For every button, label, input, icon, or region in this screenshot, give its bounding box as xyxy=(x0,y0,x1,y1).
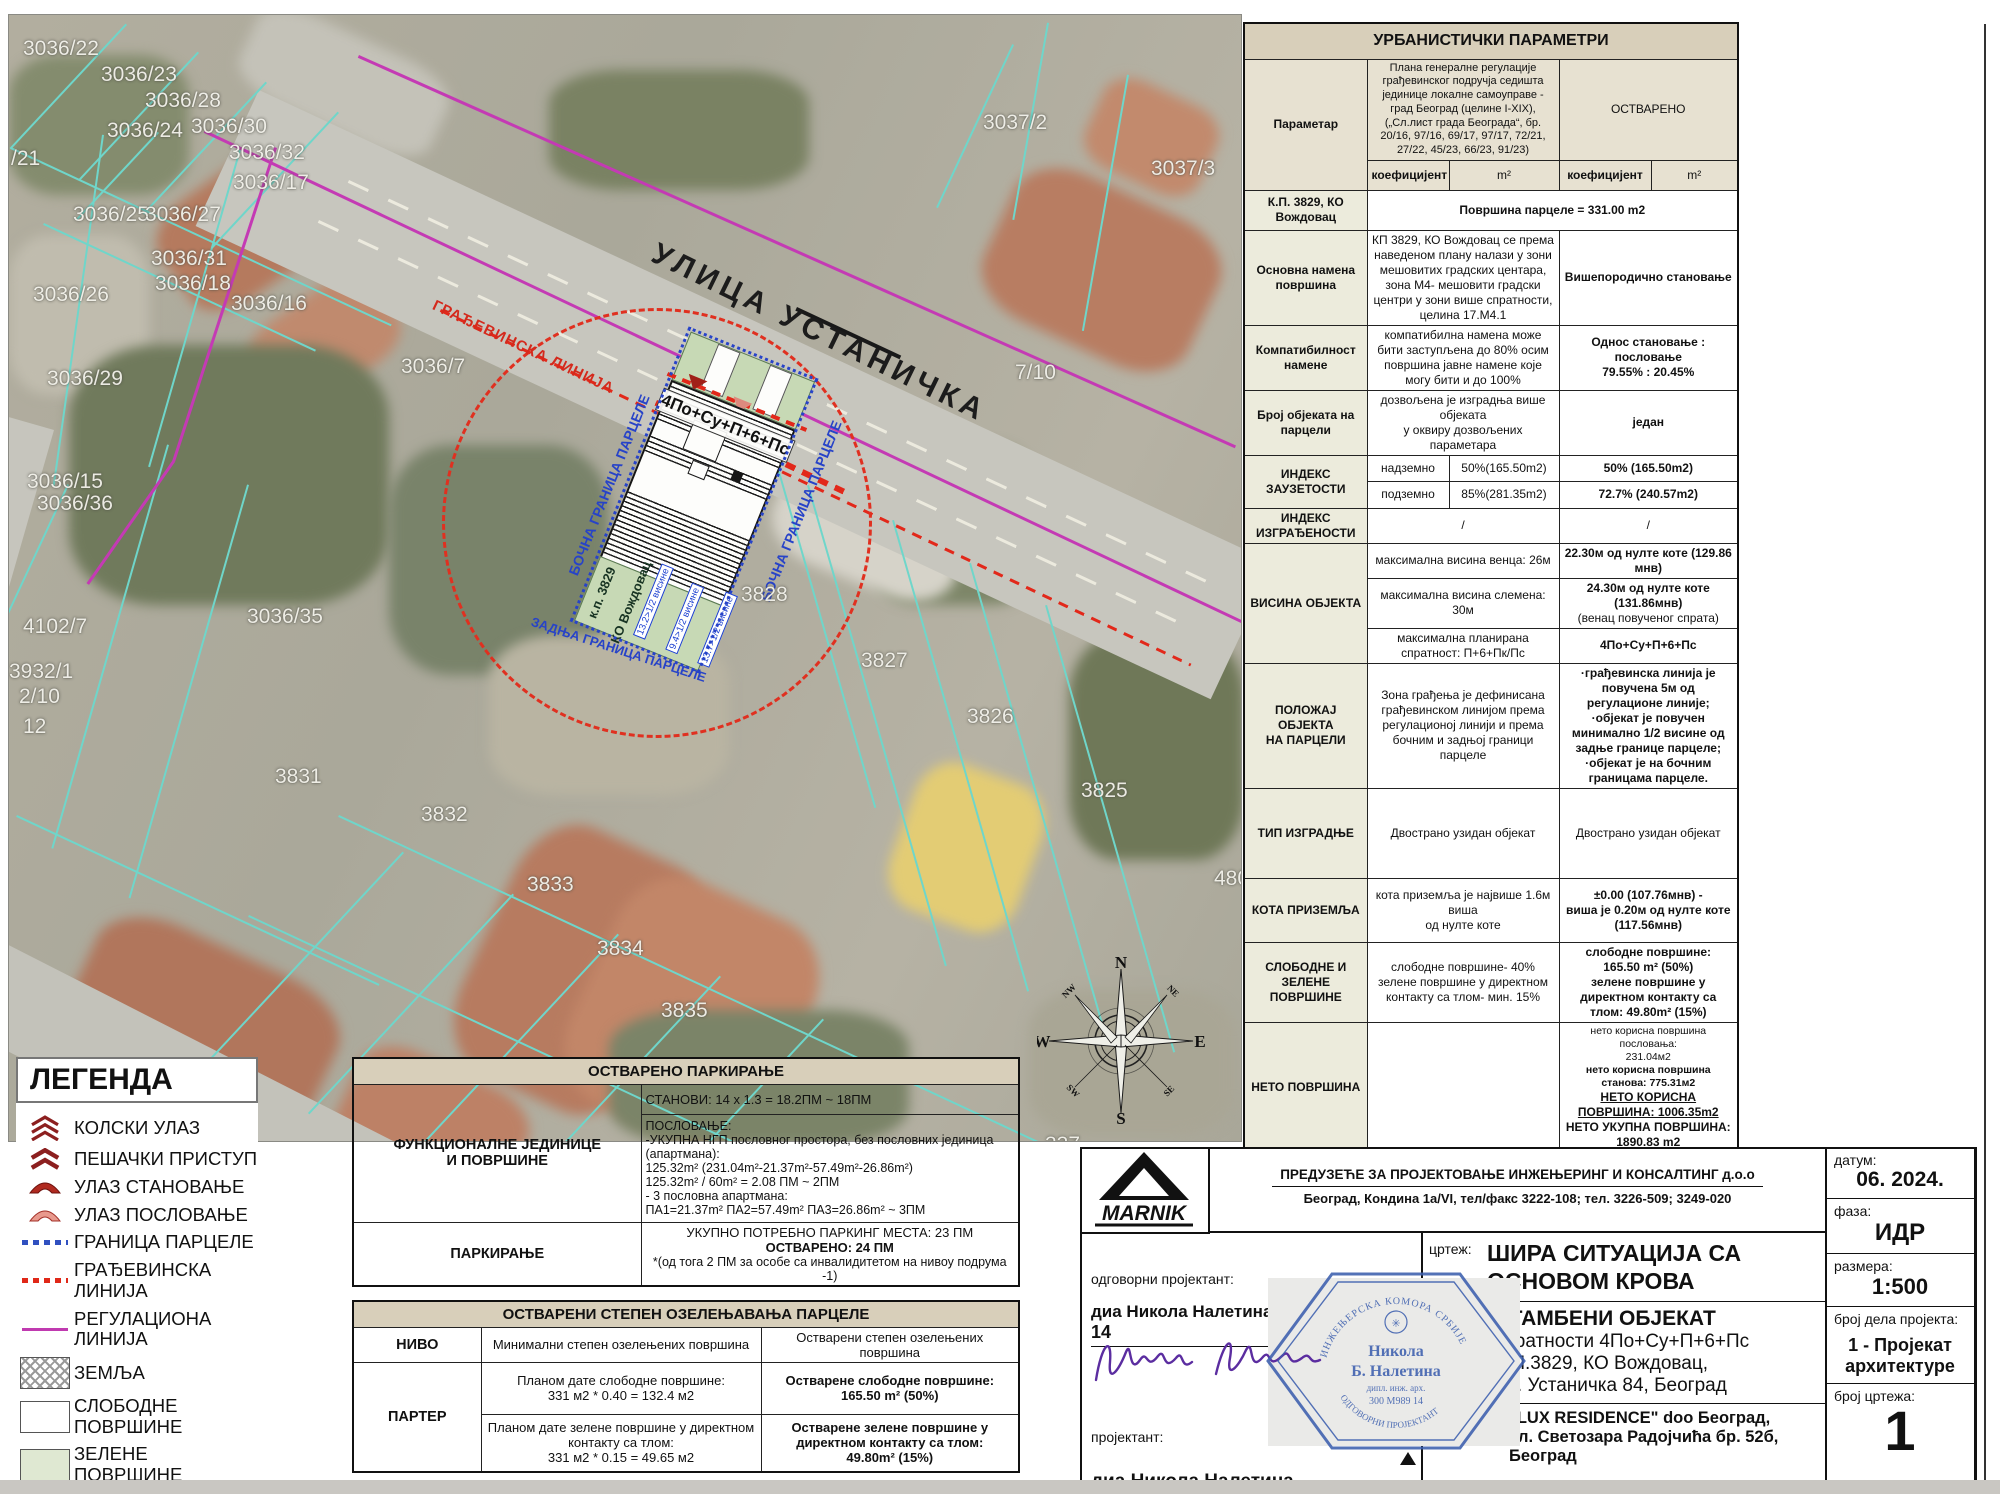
building-line-icon xyxy=(22,1278,68,1283)
parcel-label: 480 xyxy=(1214,867,1242,891)
responsible-designer-name: диа Никола Налетина xyxy=(1091,1302,1272,1321)
parcel-label: 4102/7 xyxy=(23,615,87,639)
parcel-label: 3036/36 xyxy=(37,492,113,516)
parcel-label: 3036/29 xyxy=(47,367,123,391)
vehicle-entrance-icon xyxy=(26,1115,64,1141)
parcel-label: 3036/24 xyxy=(107,119,183,143)
parcel-label: 3037/3 xyxy=(1151,157,1215,181)
legend-label: РЕГУЛАЦИОНА ЛИНИЈА xyxy=(74,1309,258,1350)
parcel-label: 3826 xyxy=(967,705,1014,729)
legend-label: УЛАЗ ПОСЛОВАЊЕ xyxy=(74,1205,248,1226)
parcel-label: 3036/27 xyxy=(145,203,221,227)
object-floors: спратности 4По+Су+П+6+Пс xyxy=(1495,1331,1820,1353)
svg-text:SE: SE xyxy=(1161,1083,1176,1098)
parcel-label: 3036/16 xyxy=(231,292,307,316)
compass-rose: N S W E NW NE SW SE xyxy=(1037,957,1205,1125)
legend-label: ГРАНИЦА ПАРЦЕЛЕ xyxy=(74,1232,254,1253)
parking-table: ОСТВАРЕНО ПАРКИРАЊЕ ФУНКЦИОНАЛНЕ ЈЕДИНИЦ… xyxy=(352,1057,1020,1287)
marnik-logo: MARNIK xyxy=(1081,1148,1207,1231)
svg-text:S: S xyxy=(1116,1109,1125,1125)
greening-table: ОСТВАРЕНИ СТЕПЕН ОЗЕЛЕЊАВАЊА ПАРЦЕЛЕ НИВ… xyxy=(352,1300,1020,1473)
parcel-label: 3036/28 xyxy=(145,89,221,113)
company-name: ПРЕДУЗЕЋЕ ЗА ПРОЈЕКТОВАЊЕ ИНЖЕЊЕРИНГ И К… xyxy=(1272,1167,1763,1187)
scan-edge xyxy=(0,1480,2000,1494)
drawing-title: ШИРА СИТУАЦИЈА СА ОСНОВОМ КРОВА xyxy=(1487,1240,1820,1295)
parcel-label: 3833 xyxy=(527,873,574,897)
scale-value: 1:500 xyxy=(1834,1274,1966,1300)
situation-map: УЛИЦА УСТАНИЧКА ГРАЂЕВИНСКА ЛИНИЈА БОЧНА… xyxy=(8,14,1242,1142)
parcel-label: 2/10 xyxy=(19,685,60,709)
parcel-label: 12 xyxy=(23,715,46,739)
investor-address: ул. Светозара Радојчића бр. 52б, Београд xyxy=(1509,1428,1820,1466)
satellite-patch xyxy=(549,70,809,190)
parcel-label: 3036/7 xyxy=(401,355,465,379)
parcel-label: 3036/23 xyxy=(101,63,177,87)
object-parcel: К.П.3829, КО Вождовац, xyxy=(1495,1353,1820,1375)
parcel-label: 3831 xyxy=(275,765,322,789)
svg-text:NW: NW xyxy=(1060,982,1078,1000)
parcel-label: 3832 xyxy=(421,803,468,827)
legend-label: ГРАЂЕВИНСКА ЛИНИЈА xyxy=(74,1260,258,1301)
object-name: СТАМБЕНИ ОБЈЕКАТ xyxy=(1495,1307,1820,1331)
svg-text:Б. Налетина: Б. Налетина xyxy=(1351,1363,1441,1380)
phase-label: фаза: xyxy=(1834,1203,1966,1219)
parcel-label: 3036/32 xyxy=(229,141,305,165)
legend-title: ЛЕГЕНДА xyxy=(16,1057,258,1103)
svg-text:NE: NE xyxy=(1165,983,1181,999)
svg-text:E: E xyxy=(1194,1032,1205,1051)
legend-label: СЛОБОДНЕ ПОВРШИНЕ xyxy=(74,1396,258,1437)
investor-name: "LUX RESIDENCE" doo Београд, xyxy=(1509,1409,1820,1428)
legend-label: ЗЕМЉА xyxy=(74,1363,145,1384)
free-surfaces-swatch xyxy=(20,1401,70,1433)
object-address: Ул. Устаничка 84, Београд xyxy=(1495,1375,1820,1397)
parcel-label: 3036/30 xyxy=(191,115,267,139)
svg-text:SW: SW xyxy=(1065,1082,1082,1099)
parcel-label: 7/10 xyxy=(1015,361,1056,385)
parcel-label: 3037/2 xyxy=(983,111,1047,135)
parcel-label: 337 xyxy=(1045,1133,1080,1142)
parcel-label: 3827 xyxy=(861,649,908,673)
pedestrian-access-icon xyxy=(28,1148,62,1170)
svg-text:MARNIK: MARNIK xyxy=(1102,1202,1188,1225)
soil-swatch xyxy=(20,1357,70,1389)
svg-text:✳: ✳ xyxy=(1391,1318,1400,1330)
legend: ЛЕГЕНДА КОЛСКИ УЛАЗ ПЕШАЧКИ ПРИСТУП УЛАЗ… xyxy=(16,1057,258,1494)
page-border xyxy=(1984,24,1986,1480)
parcel-label: 3828 xyxy=(741,583,788,607)
parcel-label: 3036/18 xyxy=(155,272,231,296)
parcel-label: 3036/25 xyxy=(73,203,149,227)
project-part-value: 1 - Пројекат архитектуре xyxy=(1834,1335,1966,1377)
stamp-pointer xyxy=(1400,1452,1416,1465)
greening-table-title: ОСТВАРЕНИ СТЕПЕН ОЗЕЛЕЊАВАЊА ПАРЦЕЛЕ xyxy=(353,1301,1019,1327)
drawing-number-value: 1 xyxy=(1834,1404,1966,1457)
legend-label: УЛАЗ СТАНОВАЊЕ xyxy=(74,1177,244,1198)
residential-entrance-icon xyxy=(28,1179,62,1195)
business-entrance-icon xyxy=(28,1207,62,1223)
urban-parameters-table: УРБАНИСТИЧКИ ПАРАМЕТРИ Параметар Плана г… xyxy=(1243,22,1739,1314)
green-surfaces-swatch xyxy=(20,1449,70,1481)
parcel-label: 3834 xyxy=(597,937,644,961)
svg-text:300 М989 14: 300 М989 14 xyxy=(1369,1396,1423,1407)
parcel-label: 3036/26 xyxy=(33,283,109,307)
parcel-label: /21 xyxy=(11,147,40,171)
parcel-boundary-line-icon xyxy=(22,1240,68,1245)
phase-value: ИДР xyxy=(1834,1219,1966,1247)
parcel-label: 3036/22 xyxy=(23,37,99,61)
legend-label: КОЛСКИ УЛАЗ xyxy=(74,1118,200,1139)
scale-label: размера: xyxy=(1834,1258,1966,1274)
regulation-line-icon xyxy=(22,1328,68,1331)
parcel-label: 3825 xyxy=(1081,779,1128,803)
parcel-label: 3036/31 xyxy=(151,247,227,271)
engineer-stamp: ИНЖЕЊЕРСКА КОМОРА СРБИЈЕ ОДГОВОРНИ ПРОЈЕ… xyxy=(1258,1258,1534,1464)
svg-text:дипл. инж. арх.: дипл. инж. арх. xyxy=(1367,1383,1426,1393)
parcel-label: 3036/15 xyxy=(27,470,103,494)
date-label: датум: xyxy=(1834,1152,1966,1168)
parcel-label: 3036/17 xyxy=(233,171,309,195)
drawing-label: цртеж: xyxy=(1429,1241,1472,1257)
drawing-sheet: УЛИЦА УСТАНИЧКА ГРАЂЕВИНСКА ЛИНИЈА БОЧНА… xyxy=(0,0,2000,1494)
legend-label: ПЕШАЧКИ ПРИСТУП xyxy=(74,1149,257,1170)
svg-text:N: N xyxy=(1115,957,1128,972)
svg-text:W: W xyxy=(1037,1032,1051,1051)
project-part-label: број дела пројекта: xyxy=(1834,1311,1966,1327)
table-title: УРБАНИСТИЧКИ ПАРАМЕТРИ xyxy=(1244,23,1738,59)
parcel-label: 3932/1 xyxy=(9,660,73,684)
parcel-label: 3835 xyxy=(661,999,708,1023)
svg-text:Никола: Никола xyxy=(1368,1343,1423,1360)
company-address: Београд, Кондина 1а/VI, тел/факс 3222-10… xyxy=(1209,1191,1826,1206)
parcel-label: 3036/35 xyxy=(247,605,323,629)
parking-table-title: ОСТВАРЕНО ПАРКИРАЊЕ xyxy=(353,1058,1019,1084)
date-value: 06. 2024. xyxy=(1834,1168,1966,1192)
